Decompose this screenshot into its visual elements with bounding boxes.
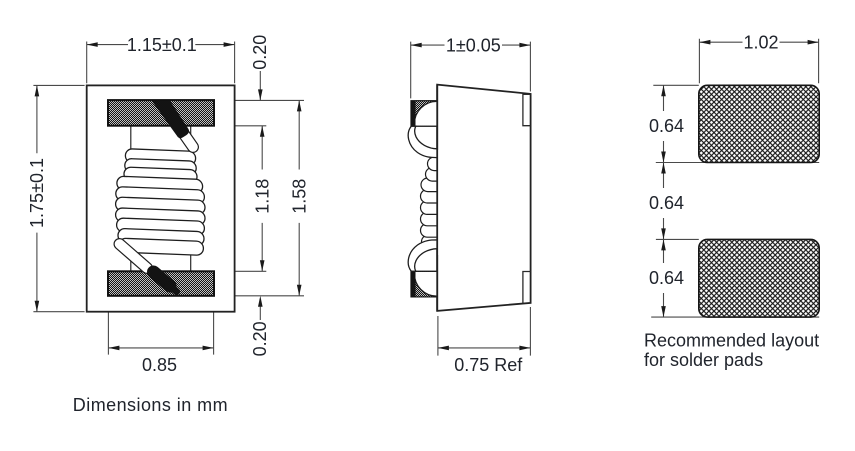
svg-text:Recommended layout: Recommended layout xyxy=(644,330,819,350)
svg-text:0.64: 0.64 xyxy=(649,268,684,288)
svg-text:1.02: 1.02 xyxy=(743,32,778,52)
svg-text:0.85: 0.85 xyxy=(142,355,177,375)
svg-text:1.18: 1.18 xyxy=(252,179,272,214)
svg-text:1.75±0.1: 1.75±0.1 xyxy=(27,158,47,228)
svg-text:Dimensions in mm: Dimensions in mm xyxy=(73,395,228,415)
svg-text:1.58: 1.58 xyxy=(289,179,309,214)
svg-text:0.64: 0.64 xyxy=(649,116,684,136)
svg-text:0.75 Ref: 0.75 Ref xyxy=(454,355,523,375)
svg-text:0.20: 0.20 xyxy=(250,35,270,70)
svg-text:0.20: 0.20 xyxy=(250,321,270,356)
svg-text:for solder pads: for solder pads xyxy=(644,350,763,370)
svg-text:1±0.05: 1±0.05 xyxy=(446,35,501,55)
svg-text:1.15±0.1: 1.15±0.1 xyxy=(127,35,197,55)
svg-text:0.64: 0.64 xyxy=(649,193,684,213)
